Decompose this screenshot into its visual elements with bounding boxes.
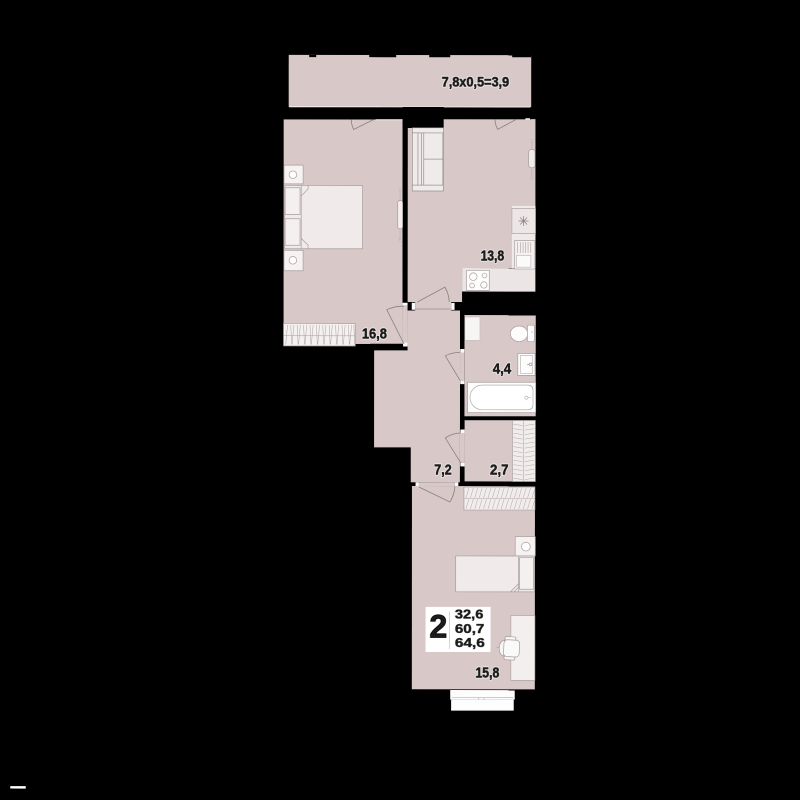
svg-text:7,2: 7,2 [434,462,452,479]
svg-text:2,7: 2,7 [490,462,509,479]
svg-text:4,4: 4,4 [493,361,512,378]
svg-text:7,8x0,5=3,9: 7,8x0,5=3,9 [442,75,510,90]
svg-text:64,6: 64,6 [455,636,485,650]
svg-text:15,8: 15,8 [475,664,499,681]
svg-text:32,6: 32,6 [455,608,484,622]
svg-text:60,7: 60,7 [455,622,485,636]
svg-text:13,8: 13,8 [481,248,505,265]
svg-text:16,8: 16,8 [362,325,387,342]
svg-text:2: 2 [429,609,447,645]
